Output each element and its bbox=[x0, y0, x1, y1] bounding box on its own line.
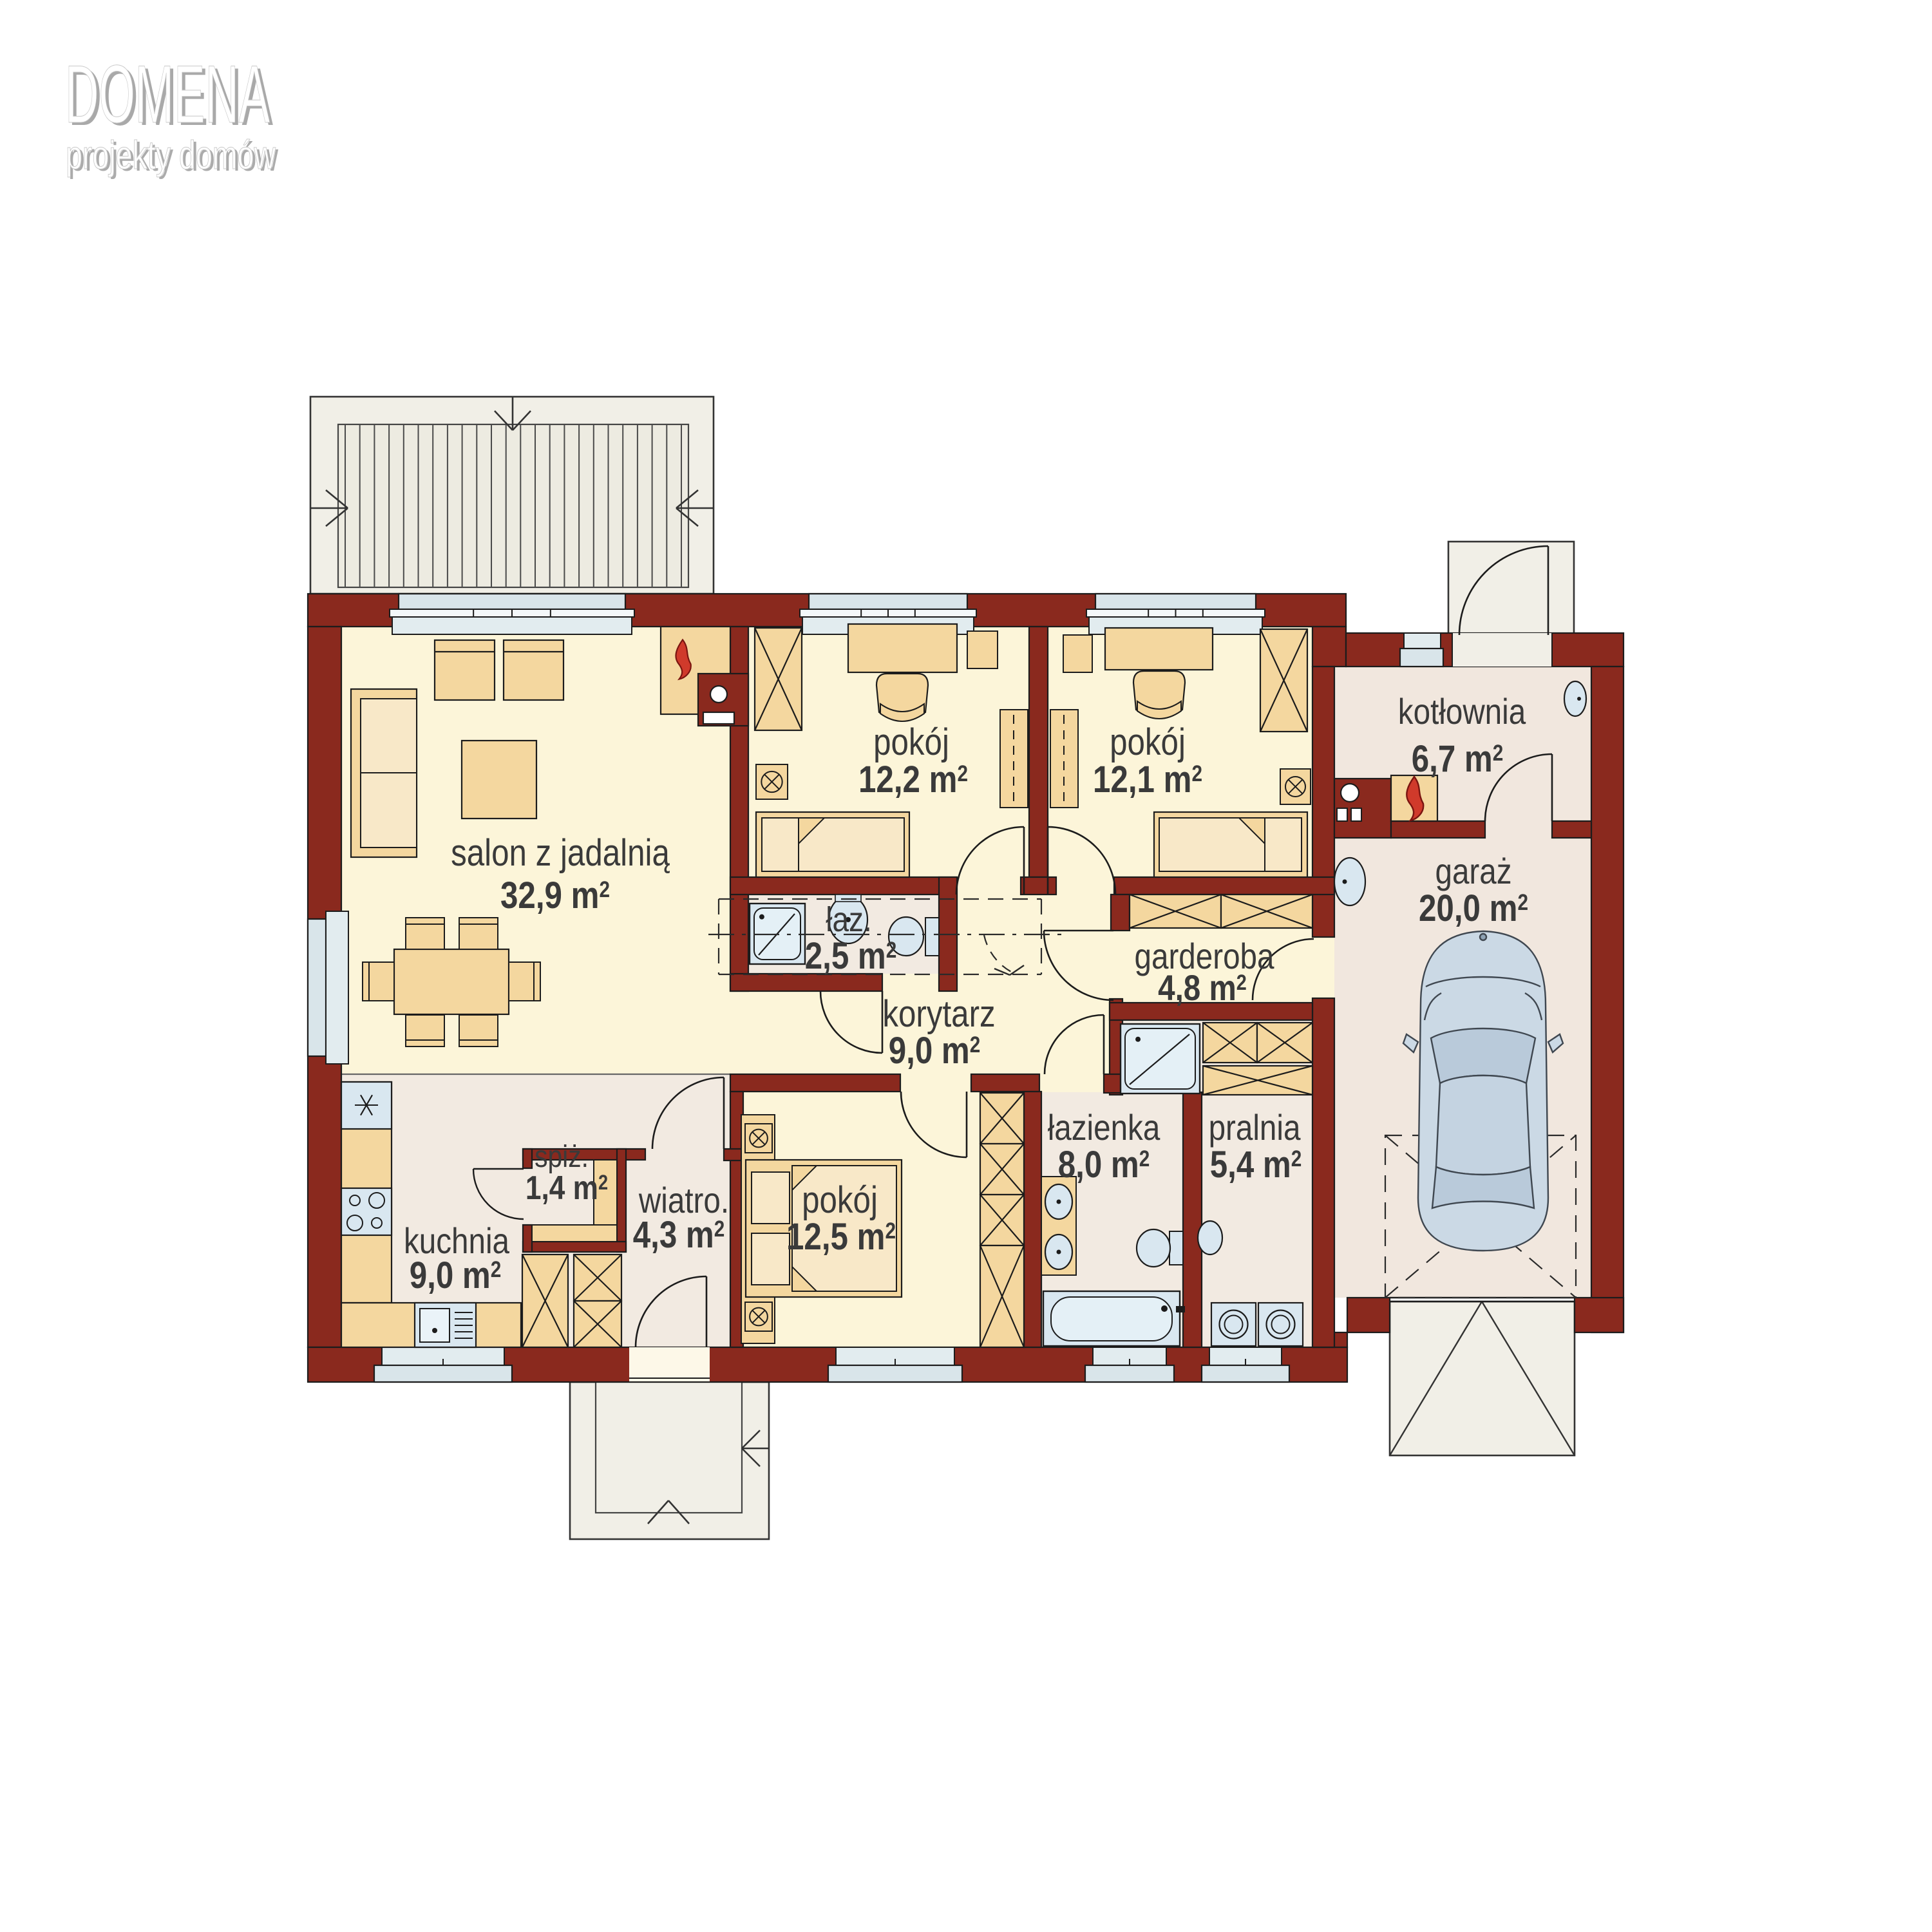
svg-text:garaż: garaż bbox=[1435, 851, 1511, 891]
svg-text:12,1 m2: 12,1 m2 bbox=[1093, 759, 1202, 800]
svg-text:korytarz: korytarz bbox=[882, 993, 995, 1035]
svg-text:8,0 m2: 8,0 m2 bbox=[1058, 1144, 1150, 1186]
svg-text:32,9 m2: 32,9 m2 bbox=[500, 875, 610, 916]
svg-text:2,5 m2: 2,5 m2 bbox=[805, 935, 897, 977]
svg-text:pralnia: pralnia bbox=[1209, 1108, 1301, 1148]
svg-text:4,3 m2: 4,3 m2 bbox=[633, 1214, 725, 1256]
svg-text:1,4 m2: 1,4 m2 bbox=[526, 1170, 608, 1207]
svg-text:12,5 m2: 12,5 m2 bbox=[786, 1216, 896, 1258]
svg-text:9,0 m2: 9,0 m2 bbox=[410, 1255, 502, 1296]
svg-text:projekty domów: projekty domów bbox=[66, 133, 276, 178]
svg-text:5,4 m2: 5,4 m2 bbox=[1210, 1144, 1302, 1186]
svg-text:DOMENA: DOMENA bbox=[65, 48, 270, 140]
svg-text:pokój: pokój bbox=[873, 721, 949, 763]
svg-text:salon z jadalnią: salon z jadalnią bbox=[451, 832, 670, 874]
svg-text:12,2 m2: 12,2 m2 bbox=[858, 759, 968, 800]
svg-text:łazienka: łazienka bbox=[1048, 1108, 1160, 1148]
svg-text:pokój: pokój bbox=[1110, 721, 1186, 763]
svg-text:pokój: pokój bbox=[802, 1179, 878, 1221]
svg-text:4,8 m2: 4,8 m2 bbox=[1158, 968, 1247, 1008]
svg-text:kotłownia: kotłownia bbox=[1398, 692, 1526, 732]
svg-text:9,0 m2: 9,0 m2 bbox=[889, 1030, 981, 1072]
svg-text:6,7 m2: 6,7 m2 bbox=[1412, 738, 1504, 780]
svg-text:20,0 m2: 20,0 m2 bbox=[1419, 887, 1528, 929]
svg-text:łaz.: łaz. bbox=[826, 900, 871, 939]
